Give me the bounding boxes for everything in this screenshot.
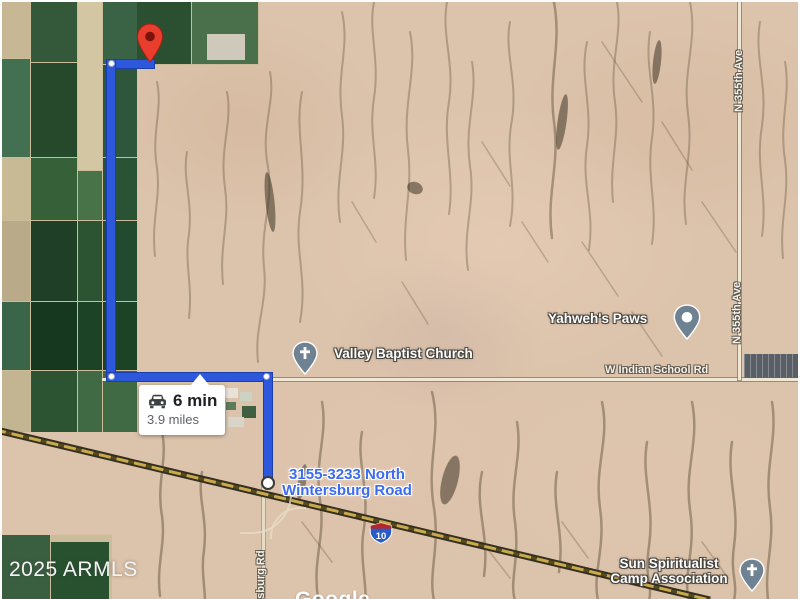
farm-buildings bbox=[207, 34, 245, 60]
label-n-355th-ave-top: N 355th Ave bbox=[733, 50, 745, 112]
route-waypoint-dot[interactable] bbox=[108, 60, 115, 67]
label-destination-address[interactable]: 3155-3233 North Wintersburg Road bbox=[272, 467, 422, 499]
map-canvas[interactable]: 10 Valley Baptist Church Yahweh's Paws S… bbox=[0, 0, 800, 599]
google-logo: Google bbox=[295, 588, 370, 599]
label-n-355th-ave-mid: N 355th Ave bbox=[731, 282, 743, 344]
route-distance: 3.9 miles bbox=[139, 411, 225, 427]
label-yahwehs-paws[interactable]: Yahweh's Paws bbox=[548, 311, 647, 326]
label-valley-baptist-church[interactable]: Valley Baptist Church bbox=[334, 346, 473, 361]
route-waypoint-dot[interactable] bbox=[108, 373, 115, 380]
poi-pin-icon[interactable] bbox=[673, 304, 701, 340]
armls-attribution: 2025 ARMLS bbox=[9, 558, 138, 582]
route-segment-south[interactable] bbox=[106, 59, 116, 382]
church-pin-icon[interactable] bbox=[739, 558, 765, 592]
route-info-bubble[interactable]: 6 min 3.9 miles bbox=[139, 385, 225, 435]
solar-array bbox=[744, 354, 800, 380]
route-segment-east[interactable] bbox=[106, 372, 273, 382]
start-pin-icon[interactable] bbox=[136, 23, 164, 63]
label-sun-spiritualist[interactable]: Sun Spiritualist Camp Association bbox=[599, 556, 739, 586]
label-indian-school-rd: W Indian School Rd bbox=[605, 364, 708, 376]
car-icon bbox=[147, 393, 168, 409]
farmstead-cluster bbox=[220, 386, 260, 434]
label-wintersburg-rd-partial: rsburg Rd bbox=[255, 550, 267, 599]
church-pin-icon[interactable] bbox=[292, 341, 318, 375]
svg-text:10: 10 bbox=[376, 531, 387, 542]
route-waypoint-dot[interactable] bbox=[263, 373, 270, 380]
route-duration: 6 min bbox=[173, 391, 217, 411]
interstate-10-shield-icon: 10 bbox=[369, 522, 393, 544]
